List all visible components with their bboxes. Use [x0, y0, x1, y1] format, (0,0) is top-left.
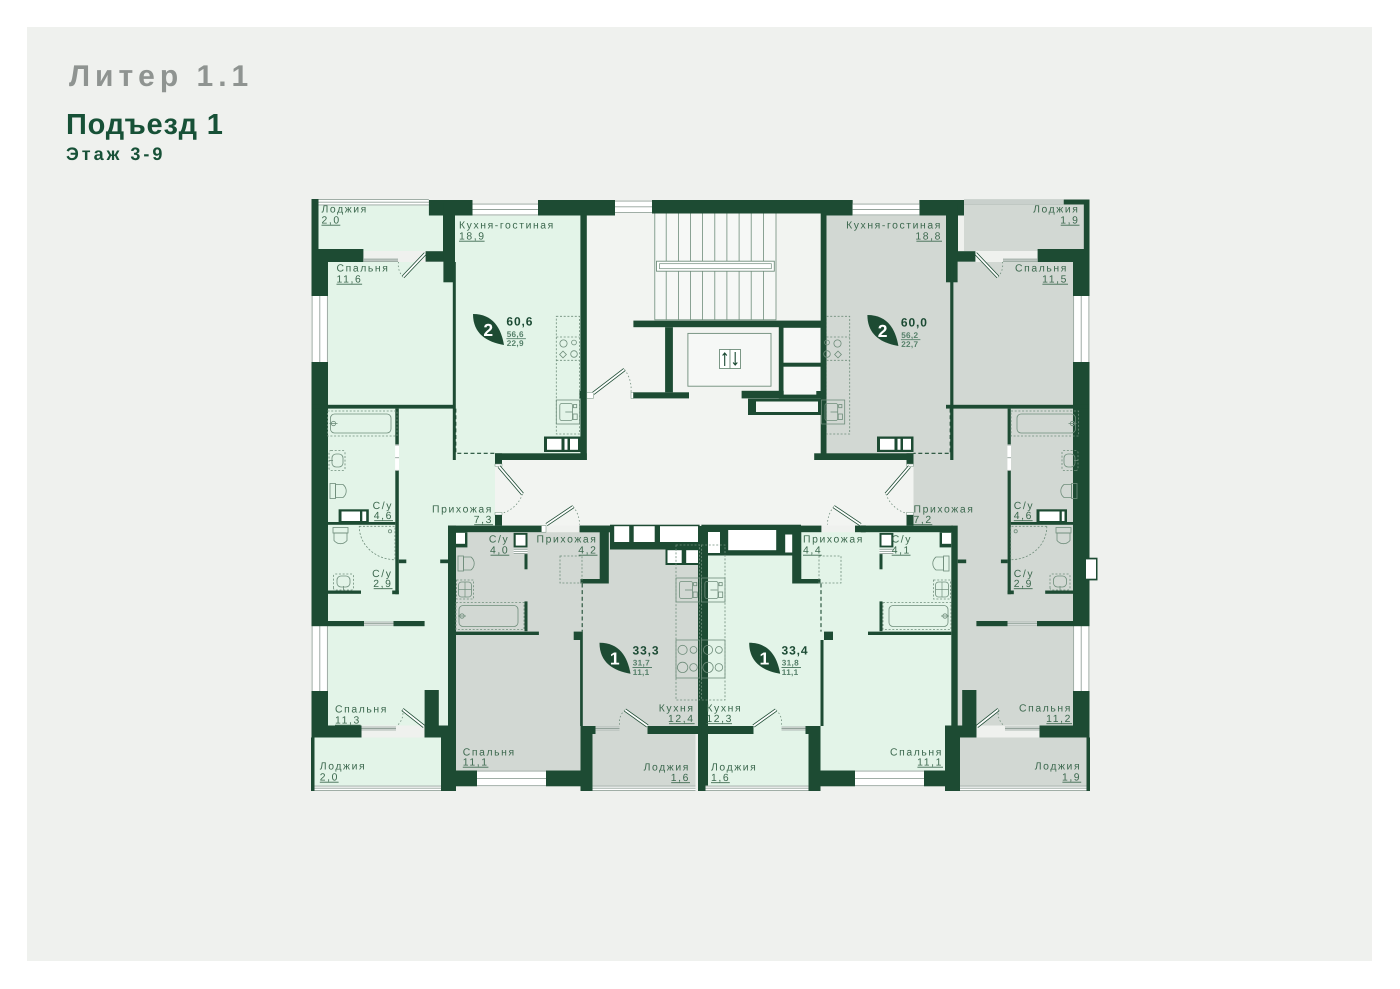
- svg-text:60,0: 60,0: [901, 316, 928, 330]
- svg-text:33,3: 33,3: [633, 644, 660, 658]
- svg-text:Прихожая: Прихожая: [803, 535, 864, 546]
- svg-text:Кухня-гостиная: Кухня-гостиная: [459, 221, 555, 232]
- svg-text:Прихожая: Прихожая: [914, 505, 975, 516]
- svg-text:Литер 1.1: Литер 1.1: [69, 60, 253, 93]
- svg-text:1: 1: [610, 649, 620, 669]
- svg-text:2: 2: [483, 320, 493, 340]
- svg-text:33,4: 33,4: [782, 644, 809, 658]
- svg-text:Лоджия: Лоджия: [711, 763, 757, 774]
- svg-text:1: 1: [760, 649, 770, 669]
- svg-text:31,7: 31,7: [633, 659, 650, 668]
- svg-text:60,6: 60,6: [506, 315, 533, 329]
- svg-text:Лоджия: Лоджия: [1035, 762, 1081, 773]
- svg-text:С/у: С/у: [892, 535, 912, 546]
- svg-text:Подъезд 1: Подъезд 1: [66, 109, 224, 141]
- svg-text:Лоджия: Лоджия: [1033, 205, 1079, 216]
- svg-text:Лоджия: Лоджия: [322, 205, 368, 216]
- svg-text:Кухня-гостиная: Кухня-гостиная: [846, 221, 942, 232]
- svg-text:11,1: 11,1: [633, 668, 650, 677]
- svg-text:Прихожая: Прихожая: [432, 505, 493, 516]
- svg-text:2: 2: [878, 321, 888, 341]
- svg-text:Спальня: Спальня: [1019, 704, 1072, 715]
- svg-text:Спальня: Спальня: [335, 705, 388, 716]
- svg-text:Прихожая: Прихожая: [537, 535, 598, 546]
- svg-text:Кухня: Кухня: [659, 704, 695, 715]
- svg-text:Спальня: Спальня: [1015, 264, 1068, 275]
- svg-text:Этаж 3-9: Этаж 3-9: [66, 144, 165, 164]
- svg-text:Лоджия: Лоджия: [320, 762, 366, 773]
- svg-text:Кухня: Кухня: [706, 704, 742, 715]
- svg-text:11,1: 11,1: [782, 668, 799, 677]
- svg-text:Спальня: Спальня: [337, 264, 390, 275]
- svg-text:Лоджия: Лоджия: [644, 763, 690, 774]
- svg-text:56,2: 56,2: [901, 331, 918, 340]
- svg-text:22,7: 22,7: [901, 340, 918, 349]
- svg-text:31,8: 31,8: [782, 659, 799, 668]
- svg-text:56,6: 56,6: [507, 330, 524, 339]
- svg-text:22,9: 22,9: [507, 339, 524, 348]
- svg-text:С/у: С/у: [489, 535, 509, 546]
